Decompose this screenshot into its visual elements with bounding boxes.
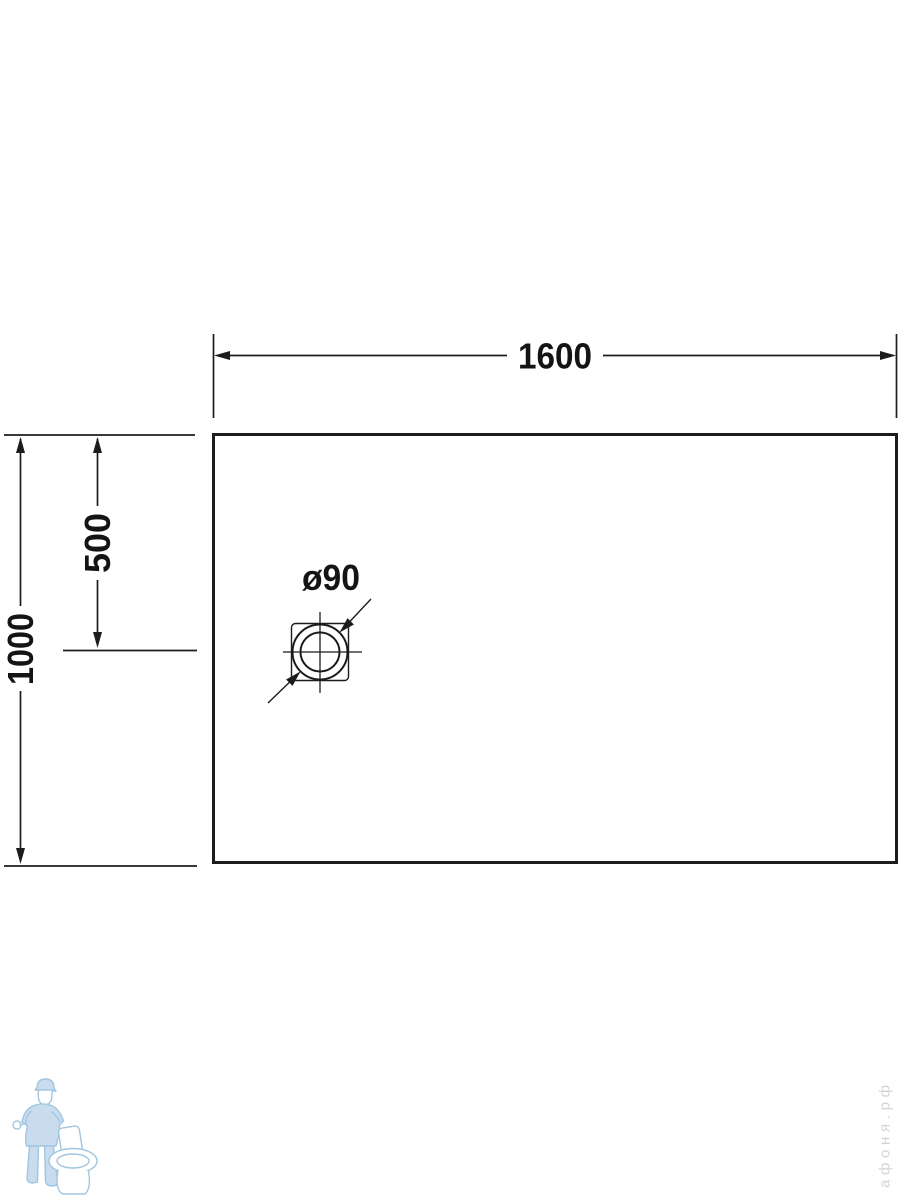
depth-dimension-label: 1000	[0, 613, 41, 685]
arrowhead-left	[214, 351, 230, 360]
plumber-face	[38, 1090, 52, 1105]
arrowhead-right	[880, 351, 896, 360]
plumber-cap	[35, 1079, 56, 1091]
plumber-logo-watermark	[13, 1079, 97, 1194]
width-dimension-label: 1600	[518, 336, 592, 377]
shower-tray-outline	[214, 435, 897, 863]
plumber-jacket	[22, 1104, 64, 1146]
arrowhead-up	[93, 437, 102, 453]
plumber-left-leg	[27, 1146, 39, 1183]
drain-offset-label: 500	[77, 513, 118, 573]
site-watermark-text: афоня.рф	[876, 1084, 893, 1188]
toilet-seat	[49, 1149, 97, 1174]
arrowhead-up	[16, 437, 25, 453]
drain-offset-dimension: 500	[63, 437, 197, 651]
drawing-canvas: 1600 1000 500	[0, 0, 900, 1200]
arrowhead-down	[16, 848, 25, 864]
top-width-dimension: 1600	[214, 334, 897, 418]
arrowhead-down	[93, 632, 102, 648]
toilet-base	[57, 1170, 89, 1194]
drain-assembly: ø90	[268, 557, 371, 703]
technical-drawing-page: 1600 1000 500	[0, 0, 900, 1200]
drain-diameter-label: ø90	[302, 557, 360, 598]
